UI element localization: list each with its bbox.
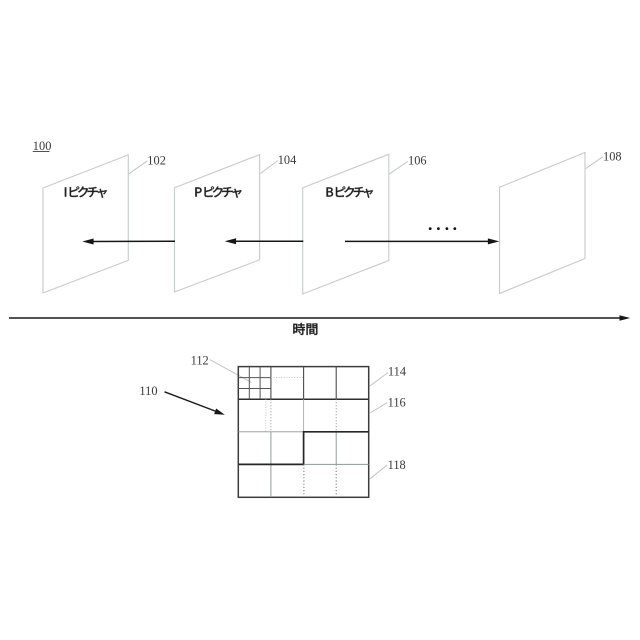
svg-text:114: 114 <box>388 364 406 378</box>
svg-text:112: 112 <box>191 353 209 367</box>
svg-text:100: 100 <box>33 139 52 153</box>
svg-text:116: 116 <box>388 396 406 410</box>
svg-text:118: 118 <box>388 458 406 472</box>
svg-text:102: 102 <box>147 153 166 167</box>
svg-text:110: 110 <box>139 384 157 398</box>
svg-text:106: 106 <box>408 154 427 168</box>
svg-text:104: 104 <box>278 153 297 167</box>
svg-text:108: 108 <box>603 150 622 164</box>
